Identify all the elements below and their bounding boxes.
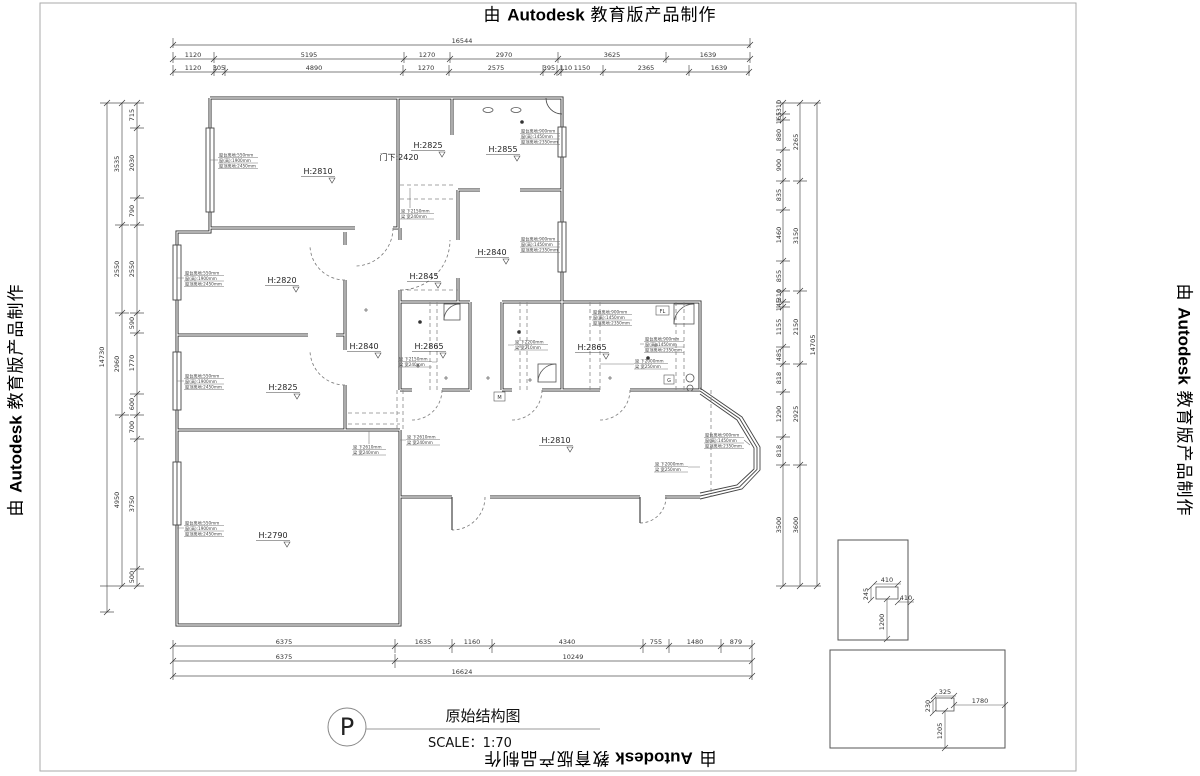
dim-text: 245 — [862, 588, 870, 600]
room-label-text: H:2845 — [409, 272, 438, 281]
dim-text: 3625 — [604, 51, 621, 59]
cad-drawing-page: 16544 1120 5195 1270 2970 3625 1639 1120… — [0, 0, 1200, 776]
dim-text: 4340 — [559, 638, 576, 646]
room-label: H:2855 — [486, 145, 520, 161]
annotation-box: 梁 下2000mm 梁 宽250mm — [654, 461, 688, 474]
dim-text: 110 — [560, 64, 572, 72]
dim-text: 1780 — [972, 697, 989, 705]
annotation-box: 梁 下2200mm 梁 宽210mm — [514, 339, 548, 352]
annotation-box: 窗台离地:900mm 窗(高):1450mm 窗顶离地:2350mm — [644, 336, 684, 354]
room-label-text: H:2865 — [414, 342, 443, 351]
window-symbol — [558, 127, 566, 157]
annotation-box: 窗台离地:550mm 窗(高):1900mm 窗顶离地:2450mm — [184, 373, 224, 391]
banner-right: 由 Autodesk 教育版产品制作 — [1174, 284, 1199, 517]
annotation-box: 窗台离地:550mm 窗(高):1900mm 窗顶离地:2450mm — [184, 270, 224, 288]
banner-text: 由 — [1175, 284, 1194, 308]
dim-text: 395 — [543, 64, 555, 72]
room-label-text: H:2825 — [268, 383, 297, 392]
dim-text: 485 — [775, 349, 783, 361]
dim-text: 16544 — [452, 37, 473, 45]
banner-text: 教育版产品制作 — [1175, 385, 1194, 517]
dim-text: 1120 — [185, 64, 202, 72]
dim-text: 2550 — [128, 261, 136, 278]
dim-text: 4890 — [306, 64, 323, 72]
dim-text: 855 — [775, 270, 783, 282]
walls — [177, 98, 700, 625]
dim-text: 600 — [128, 398, 136, 410]
dim-text: 900 — [775, 159, 783, 171]
dim-text-right: 310 165 880 900 835 1460 855 310 145 115… — [775, 100, 817, 533]
equipment-tags: FL G M — [494, 306, 674, 401]
dim-text: 715 — [128, 109, 136, 121]
dim-chain-left — [100, 100, 144, 615]
dim-text: 4950 — [113, 492, 121, 509]
room-label-text: H:2810 — [541, 436, 570, 445]
dim-text: 230 — [924, 700, 932, 712]
dim-text: 1270 — [418, 64, 435, 72]
washer-icon — [686, 374, 694, 391]
banner-text: 由 — [693, 749, 717, 768]
dim-text: 310 — [775, 100, 783, 112]
dim-text: 1770 — [128, 355, 136, 372]
dim-text-left: 715 2030 790 2550 590 1770 600 700 3750 … — [98, 109, 136, 583]
shower-icon — [444, 304, 460, 320]
room-label-text: H:2865 — [577, 343, 606, 352]
tag-label: M — [497, 395, 501, 401]
gas-tag: G — [664, 375, 674, 384]
dim-text: 755 — [650, 638, 662, 646]
tag-label: G — [667, 378, 671, 384]
dim-text: 1639 — [700, 51, 717, 59]
dim-text: 2575 — [488, 64, 505, 72]
dim-text: 2960 — [113, 356, 121, 373]
annotation-box: 梁 下2150mm 梁 宽240mm — [398, 356, 432, 369]
room-label: H:2840 — [347, 342, 381, 358]
dim-text-bottom: 6375 1635 1160 4340 755 1480 879 6375 10… — [276, 638, 742, 676]
dim-text: 14705 — [809, 335, 817, 356]
dim-text: 1200 — [878, 614, 886, 631]
dim-text: 1120 — [185, 51, 202, 59]
banner-bottom: 由 Autodesk 教育版产品制作 — [484, 748, 717, 773]
banner-text: 教育版产品制作 — [7, 284, 26, 416]
room-label: H:2825 — [266, 383, 300, 399]
dim-text: 3500 — [775, 517, 783, 534]
dim-text: 818 — [775, 445, 783, 457]
dim-text: 165 — [775, 112, 783, 124]
banner-text: 教育版产品制作 — [484, 749, 616, 768]
dim-text: 1160 — [464, 638, 481, 646]
dim-text: 500 — [128, 571, 136, 583]
room-labels: H:2810 H:2825 H:2855 H:2840 H:2820 H:284… — [256, 141, 609, 547]
dim-text: 1205 — [936, 723, 944, 740]
room-label: H:2840 — [475, 248, 509, 264]
annotation-box: 窗台离地:900mm 窗(高):1450mm 窗顶离地:2350mm — [704, 432, 744, 450]
detail-box-a: 410 245 410 1200 — [838, 540, 914, 642]
dim-text: 1150 — [574, 64, 591, 72]
window-symbol — [173, 462, 181, 525]
dim-text: 6375 — [276, 653, 293, 661]
room-label-text: H:2840 — [477, 248, 506, 257]
title-block: P 原始结构图 SCALE：1:70 — [328, 707, 600, 751]
banner-brand: Autodesk — [1175, 307, 1194, 384]
annotation-box: 梁 下2610mm 梁 宽240mm — [406, 434, 440, 447]
sink-icon — [483, 108, 521, 113]
dim-text: 5195 — [301, 51, 318, 59]
room-label: H:2810 — [539, 436, 573, 452]
annotation-box: 窗台离地:550mm 窗(高):1900mm 窗顶离地:2450mm — [218, 152, 258, 170]
room-label-text: H:2840 — [349, 342, 378, 351]
dim-text: 1290 — [775, 406, 783, 423]
dim-text-top: 16544 1120 5195 1270 2970 3625 1639 1120… — [185, 37, 728, 72]
dim-text: 818 — [775, 372, 783, 384]
annotation-box: 梁 下2000mm 梁 宽250mm — [634, 358, 668, 371]
shower-icon — [674, 304, 694, 324]
dim-text: 2030 — [128, 155, 136, 172]
drawing-title: 原始结构图 — [445, 707, 520, 725]
banner-brand: Autodesk — [615, 749, 692, 768]
room-label-text: H:2825 — [413, 141, 442, 150]
dim-text: 3150 — [792, 228, 800, 245]
dim-text: 1480 — [687, 638, 704, 646]
annotation-box: 窗台离地:900mm 窗(高):1450mm 窗顶离地:2350mm — [520, 236, 560, 254]
dim-text: 2150 — [792, 319, 800, 336]
dim-text: 2970 — [496, 51, 513, 59]
room-label: H:2790 — [256, 531, 290, 547]
dim-text: 2925 — [792, 406, 800, 423]
meter-tag: M — [494, 392, 505, 401]
dim-text: 145 — [775, 299, 783, 311]
annotation-box: 梁 下2610mm 梁 宽240mm — [352, 444, 386, 457]
banner-left: 由 Autodesk 教育版产品制作 — [2, 284, 27, 517]
dim-text: 410 — [881, 576, 893, 584]
dim-text: 835 — [775, 189, 783, 201]
room-label: H:2820 — [265, 276, 299, 292]
room-label-text: H:2810 — [303, 167, 332, 176]
floor-drain-tag: FL — [656, 306, 669, 315]
room-label-text: H:2790 — [258, 531, 287, 540]
detail-box-b: 325 230 1780 1205 — [830, 650, 1008, 751]
annotation-box: 梁 下2150mm 梁 宽240mm — [400, 208, 434, 221]
banner-top: 由 Autodesk 教育版产品制作 — [484, 1, 717, 26]
dim-text: 2550 — [113, 261, 121, 278]
dim-text: 10249 — [563, 653, 584, 661]
window-symbol — [206, 128, 214, 212]
dim-text: 3535 — [113, 156, 121, 173]
door-height-label: 门下:2420 — [379, 152, 418, 162]
shower-icon — [538, 364, 556, 382]
dim-text: 3750 — [128, 496, 136, 513]
dim-text: 1635 — [415, 638, 432, 646]
dim-text: 1270 — [419, 51, 436, 59]
dim-text: 305 — [213, 64, 225, 72]
annotation-box: 窗台离地:900mm 窗(高):1450mm 窗顶离地:2350mm — [520, 128, 560, 146]
dim-text: 1155 — [775, 319, 783, 336]
dim-text: 325 — [939, 688, 951, 696]
dim-text: 1460 — [775, 227, 783, 244]
dim-text: 6375 — [276, 638, 293, 646]
dim-text: 879 — [730, 638, 742, 646]
window-symbol — [173, 245, 181, 300]
dim-text: 16624 — [452, 668, 473, 676]
banner-text: 教育版产品制作 — [585, 6, 717, 25]
dim-text: 590 — [128, 317, 136, 329]
dim-text: 790 — [128, 205, 136, 217]
dim-text: 2365 — [638, 64, 655, 72]
banner-brand: Autodesk — [7, 415, 26, 492]
room-label-text: H:2855 — [488, 145, 517, 154]
banner-text: 由 — [7, 493, 26, 517]
floor-plan-canvas: 16544 1120 5195 1270 2970 3625 1639 1120… — [0, 0, 1200, 776]
plan-symbol: P — [340, 713, 354, 741]
dim-text: 410 — [900, 594, 912, 602]
banner-text: 由 — [484, 6, 508, 25]
dim-text: 880 — [775, 129, 783, 141]
dim-text: 14730 — [98, 347, 106, 368]
annotation-box: 窗台离地:550mm 窗(高):1900mm 窗顶离地:2450mm — [184, 520, 224, 538]
dim-text: 1639 — [711, 64, 728, 72]
dim-text: 3600 — [792, 517, 800, 534]
tag-label: FL — [660, 309, 666, 315]
dim-text: 700 — [128, 421, 136, 433]
room-label: H:2845 — [407, 272, 441, 288]
room-label: H:2865 — [575, 343, 609, 359]
dim-text: 2265 — [792, 134, 800, 151]
annotation-box: 窗台离地:900mm 窗(高):1450mm 窗顶离地:2350mm — [592, 309, 632, 327]
banner-brand: Autodesk — [507, 6, 584, 25]
room-label: H:2810 — [301, 167, 335, 183]
room-label-text: H:2820 — [267, 276, 296, 285]
